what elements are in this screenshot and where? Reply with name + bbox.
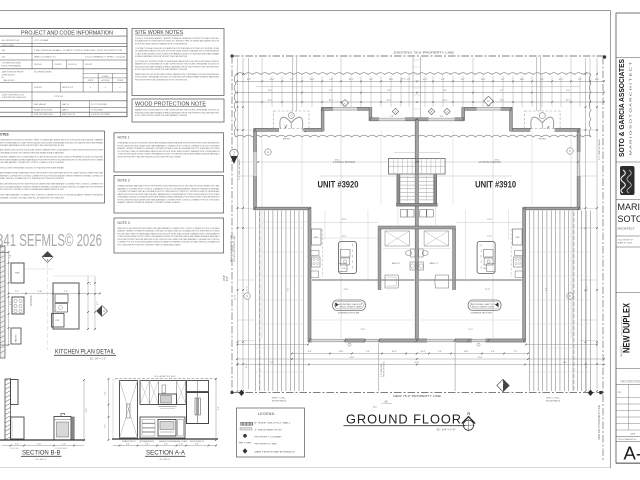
svg-text:TITLE DRAWING No.: TITLE DRAWING No. xyxy=(618,438,638,441)
svg-text:OPEN AREAS SODDING OR PLANTING: OPEN AREAS SODDING OR PLANTING WHICH ARE… xyxy=(0,151,64,154)
svg-text:15'-6": 15'-6" xyxy=(342,219,347,221)
svg-text:14'-0": 14'-0" xyxy=(464,351,469,353)
svg-text:14'-0": 14'-0" xyxy=(339,351,344,353)
svg-text:27'-0": 27'-0" xyxy=(247,286,249,291)
svg-text:BATH #1: BATH #1 xyxy=(392,262,401,265)
svg-text:DW: DW xyxy=(343,268,346,270)
svg-text:GROUND FLOOR: GROUND FLOOR xyxy=(346,411,462,426)
svg-text:GROUP R-2: GROUP R-2 xyxy=(62,87,74,89)
svg-text:SITE WORK IN AN ORDERLY MANNER: SITE WORK IN AN ORDERLY MANNER WITH CONS… xyxy=(135,42,187,45)
svg-text:..EAR INTERIOR FINISH: ..EAR INTERIOR FINISH xyxy=(1,71,24,74)
svg-text:OTES: OTES xyxy=(0,132,9,136)
svg-text:8'-0": 8'-0" xyxy=(247,79,251,81)
svg-text:8'-0": 8'-0" xyxy=(270,362,274,364)
svg-text:27'-0": 27'-0" xyxy=(235,294,237,300)
svg-text:BATH #1: BATH #1 xyxy=(430,262,439,265)
svg-text:..AL JURISDICTION: ..AL JURISDICTION xyxy=(1,39,20,42)
svg-text:4" WIDE PARTITION: 4" WIDE PARTITION xyxy=(255,428,283,431)
svg-text:NEW 5' CONC.: NEW 5' CONC. xyxy=(546,398,560,400)
svg-text:GENERAL CONTRACTOR SHALL KEEP: GENERAL CONTRACTOR SHALL KEEP ALL EXCAVA… xyxy=(0,196,64,199)
svg-text:WARRANTY LICENSED PEST CONTROL: WARRANTY LICENSED PEST CONTROL COMPANY F… xyxy=(118,187,221,190)
svg-text:PITS TRENCHES FOOTINGS ETC ENT: PITS TRENCHES FOOTINGS ETC ENTIRELY FREE… xyxy=(118,243,182,246)
svg-text:19'-6": 19'-6" xyxy=(495,160,500,162)
svg-text:TO ANY SURROUNDING STRUCTURES: TO ANY SURROUNDING STRUCTURES OPEN AREAS… xyxy=(118,153,220,156)
svg-text:TO ANY SURROUNDING STRUCTURES: TO ANY SURROUNDING STRUCTURES OPEN AREAS… xyxy=(135,52,219,55)
svg-text:5'-0" SIDE SETBACK: 5'-0" SIDE SETBACK xyxy=(598,139,601,160)
svg-text:PANTRY: PANTRY xyxy=(15,333,18,342)
svg-text:SOTO P: SOTO P xyxy=(618,214,640,224)
svg-text:2,604 SF PROVIDED: 2,604 SF PROVIDED xyxy=(91,114,111,116)
svg-text:2 UNITS: 2 UNITS xyxy=(54,64,62,66)
svg-text:FOOTINGS ETC ENTIRELY FREE OF: FOOTINGS ETC ENTIRELY FREE OF DEBRIS AND… xyxy=(135,60,219,63)
svg-text:ARCHITECT: ARCHITECT xyxy=(618,227,635,231)
svg-text:4'-7": 4'-7" xyxy=(97,301,99,305)
svg-text:MAX 35': MAX 35' xyxy=(62,103,70,106)
svg-text:ETC ENTIRELY FREE OF DEBRIS AN: ETC ENTIRELY FREE OF DEBRIS AND WATER EX… xyxy=(118,150,220,153)
svg-text:M A R I O S O T O A R C H: M A R I O S O T O A R C H I T E C T xyxy=(629,61,633,155)
svg-text:FOR SOIL POISONING AGAINST TER: FOR SOIL POISONING AGAINST TERMITE OPERA… xyxy=(135,37,220,40)
svg-text:3910-3920 SW 25 ST: 3910-3920 SW 25 ST xyxy=(621,315,623,336)
svg-text:2'-6": 2'-6" xyxy=(62,443,66,445)
svg-text:MAIN PEDESTRIAN ENTRANCE: MAIN PEDESTRIAN ENTRANCE xyxy=(255,450,296,453)
svg-text:5'-0": 5'-0" xyxy=(226,276,229,281)
svg-text:10'-4": 10'-4" xyxy=(392,351,397,353)
svg-text:21'-8": 21'-8" xyxy=(344,289,349,291)
svg-text:STRUCTURES/AREA: STRUCTURES/AREA xyxy=(1,64,21,67)
svg-text:FROM THE PROPERTY BECOME REMOV: FROM THE PROPERTY BECOME REMOVED BY HIS … xyxy=(135,79,188,81)
svg-text:9'-1": 9'-1" xyxy=(290,79,294,81)
svg-text:OCCUPANCY (FBC Chp3): OCCUPANCY (FBC Chp3) xyxy=(85,56,126,59)
svg-text:..NG: ..NG xyxy=(1,50,6,52)
svg-text:2'-6": 2'-6" xyxy=(164,443,168,445)
svg-text:OLD 87'M PROPERTY LINE: OLD 87'M PROPERTY LINE xyxy=(234,235,236,262)
svg-text:9'-1": 9'-1" xyxy=(500,90,504,92)
svg-text:9'-8": 9'-8" xyxy=(329,79,333,81)
svg-text:1'-0": 1'-0" xyxy=(179,443,183,445)
svg-text:AND WATER EXECUTE SITE WORK IN: AND WATER EXECUTE SITE WORK IN AN ORDERL… xyxy=(0,149,103,152)
svg-text:2'-0": 2'-0" xyxy=(15,291,19,293)
svg-text:SIZE OF DWELLING: SIZE OF DWELLING xyxy=(34,114,53,116)
svg-text:8" WIDE CMU FULL WALL: 8" WIDE CMU FULL WALL xyxy=(255,421,292,424)
svg-text:EXISTING 78.0' PROPERTY LINE: EXISTING 78.0' PROPERTY LINE xyxy=(394,51,454,55)
svg-text:SURFACE MATERIALS FROM THE PRO: SURFACE MATERIALS FROM THE PROPERTY BECO… xyxy=(0,144,64,147)
svg-text:NEW 75.0' PROPERTY LINE: NEW 75.0' PROPERTY LINE xyxy=(393,394,441,398)
svg-text:DINING ROOM: DINING ROOM xyxy=(471,313,492,315)
svg-text:UNIT #3910: UNIT #3910 xyxy=(475,180,516,190)
svg-text:2'-0": 2'-0" xyxy=(15,443,19,445)
svg-text:9'-8": 9'-8" xyxy=(387,90,391,92)
svg-text:NUMB OF FLOORS: NUMB OF FLOORS xyxy=(34,109,53,111)
svg-text:TRENCHES FOOTINGS ETC ENTIRELY: TRENCHES FOOTINGS ETC ENTIRELY FREE OF D… xyxy=(0,139,103,142)
svg-text:SURFACE MATERIALS FROM THE PRO: SURFACE MATERIALS FROM THE PROPERTY BECO… xyxy=(135,55,187,58)
svg-text:SC: 3/8"=1': SC: 3/8"=1' xyxy=(36,459,48,461)
svg-text:ETC ENTIRELY FREE OF DEBRIS AN: ETC ENTIRELY FREE OF DEBRIS AND WATER EX… xyxy=(118,232,220,235)
svg-text:MODIFIED LAYOUT: MODIFIED LAYOUT xyxy=(339,303,364,306)
svg-text:8'-0": 8'-0" xyxy=(566,90,570,92)
svg-text:SC: 1/4" = 1'-0": SC: 1/4" = 1'-0" xyxy=(436,428,455,432)
svg-text:NEW 120.0' PROPERTY LINE: NEW 120.0' PROPERTY LINE xyxy=(597,405,601,440)
svg-text:15'-6": 15'-6" xyxy=(487,219,492,221)
svg-text:8'-0": 8'-0" xyxy=(491,351,495,353)
svg-text:THE DESIGN SHALL COMPLY WITH T: THE DESIGN SHALL COMPLY WITH THE FBC 202… xyxy=(34,49,123,52)
svg-text:2'-0": 2'-0" xyxy=(126,443,130,445)
svg-text:BY HIS CREW PROVIDE OWNER ONE: BY HIS CREW PROVIDE OWNER ONE YEAR WARRA… xyxy=(118,198,220,201)
svg-text:PROJECT AND CODE INFORMATION: PROJECT AND CODE INFORMATION xyxy=(21,30,113,36)
svg-text:TO ANY SURROUNDING STRUCTURES: TO ANY SURROUNDING STRUCTURES OPEN AREAS… xyxy=(118,235,220,238)
svg-text:AGAINST TERMITE OPERATION GENE: AGAINST TERMITE OPERATION GENERAL CONTRA… xyxy=(118,147,220,150)
svg-text:ENTRY: ENTRY xyxy=(539,139,547,141)
svg-text:FROM THE PROPERTY BECOME REMOV: FROM THE PROPERTY BECOME REMOVED BY HIS … xyxy=(118,156,182,158)
svg-text:NO SPRINKLERED: NO SPRINKLERED xyxy=(34,72,52,74)
svg-text:ONE YEAR WARRANTY LICENSED PES: ONE YEAR WARRANTY LICENSED PEST CONTROL … xyxy=(0,194,103,197)
svg-text:5'-10": 5'-10" xyxy=(37,443,42,445)
svg-text:UNITS: UNITS xyxy=(88,80,94,82)
svg-text:MARIO: MARIO xyxy=(618,202,640,212)
svg-text:..DING CONSTRUCTION: ..DING CONSTRUCTION xyxy=(1,94,24,96)
svg-text:3'-0": 3'-0" xyxy=(284,125,288,127)
svg-text:27'-0": 27'-0" xyxy=(246,363,248,368)
svg-text:ACCESS: ACCESS xyxy=(102,79,111,82)
svg-text:27'-0": 27'-0" xyxy=(586,363,588,368)
svg-text:FRONT SETBACK: FRONT SETBACK xyxy=(383,360,386,377)
svg-text:16'-1": 16'-1" xyxy=(443,100,448,102)
svg-text:BECOME REMOVED BY HIS CREW PRO: BECOME REMOVED BY HIS CREW PROVIDE OWNER… xyxy=(0,183,103,186)
svg-text:2'-6": 2'-6" xyxy=(145,443,149,445)
svg-text:6'-10": 6'-10" xyxy=(38,291,43,293)
svg-text:TABLE 803.5: TABLE 803.5 xyxy=(3,79,16,82)
svg-text:9'-8": 9'-8" xyxy=(438,351,442,353)
svg-text:27'-0": 27'-0" xyxy=(361,329,366,331)
svg-text:NEW 87'M PROPERTY LINE: NEW 87'M PROPERTY LINE xyxy=(231,234,233,262)
svg-text:24'-6": 24'-6" xyxy=(478,357,483,359)
svg-text:ARE REMAIN SURFACE MATERIALS F: ARE REMAIN SURFACE MATERIALS FROM THE PR… xyxy=(0,172,103,175)
svg-text:REMOVED BY HIS CREW PROVIDE OW: REMOVED BY HIS CREW PROVIDE OWNER ONE YE… xyxy=(118,227,220,230)
svg-text:..SSIFICATION: ..SSIFICATION xyxy=(1,73,15,76)
svg-text:341 SEFMLS© 2026: 341 SEFMLS© 2026 xyxy=(0,230,102,250)
svg-text:9'-8": 9'-8" xyxy=(440,116,444,118)
svg-text:19'-6": 19'-6" xyxy=(335,160,340,162)
svg-text:CONTRACTOR SHALL KEEP ALL EXCA: CONTRACTOR SHALL KEEP ALL EXCAVATIONS PI… xyxy=(118,190,220,193)
svg-text:8'-0": 8'-0" xyxy=(86,408,88,412)
svg-text:COMPANY FOR SOIL POISONING AGA: COMPANY FOR SOIL POISONING AGAINST TERMI… xyxy=(118,241,220,244)
svg-text:MANNER WITH CONSIDERATION TO A: MANNER WITH CONSIDERATION TO ANY SURROUN… xyxy=(135,109,219,112)
svg-text:DUPLEX: DUPLEX xyxy=(34,87,43,89)
svg-text:8'-0": 8'-0" xyxy=(563,362,567,364)
svg-text:NOTE 1: NOTE 1 xyxy=(118,136,130,140)
svg-text:BY HIS CREW PROVIDE OWNER ONE: BY HIS CREW PROVIDE OWNER ONE YEAR WARRA… xyxy=(135,114,187,117)
svg-text:16'-1": 16'-1" xyxy=(329,100,334,102)
svg-text:3'-0": 3'-0" xyxy=(195,443,199,445)
svg-text:2,604 S.F.: 2,604 S.F. xyxy=(68,64,77,66)
svg-text:2 PROVIDED: 2 PROVIDED xyxy=(91,109,104,111)
svg-text:FOOTINGS ETC ENTIRELY FREE OF: FOOTINGS ETC ENTIRELY FREE OF DEBRIS AND… xyxy=(0,188,64,191)
svg-text:8'-4": 8'-4" xyxy=(288,287,290,291)
svg-text:REF.: REF. xyxy=(15,273,20,275)
svg-text:8'-0": 8'-0" xyxy=(268,90,272,92)
svg-text:9'-1": 9'-1" xyxy=(514,351,518,353)
svg-text:SW (SETBACK): SW (SETBACK) xyxy=(272,400,287,403)
svg-text:9'-1": 9'-1" xyxy=(329,90,333,92)
svg-text:STRUCTURES OPEN AREAS SODDING: STRUCTURES OPEN AREAS SODDING OR PLANTIN… xyxy=(0,167,64,170)
svg-text:27'-0": 27'-0" xyxy=(468,329,473,331)
svg-text:WITH CONSIDERATION TO ANY SURR: WITH CONSIDERATION TO ANY SURROUNDING ST… xyxy=(0,141,103,144)
svg-text:FIELD VERIFY DIMS: FIELD VERIFY DIMS xyxy=(340,307,363,309)
svg-text:MAX HEIGHT: MAX HEIGHT xyxy=(34,103,47,106)
svg-text:8'-0": 8'-0" xyxy=(218,406,220,410)
svg-text:ORDERLY MANNER WITH CONSIDERAT: ORDERLY MANNER WITH CONSIDERATION TO ANY… xyxy=(0,156,103,159)
svg-text:MODIFIED LAYOUT: MODIFIED LAYOUT xyxy=(471,303,496,306)
svg-text:MANNER WITH CONSIDERATION TO A: MANNER WITH CONSIDERATION TO ANY SURROUN… xyxy=(135,63,219,66)
svg-text:4'-6": 4'-6" xyxy=(105,391,107,395)
svg-text:N: N xyxy=(467,411,470,416)
svg-text:DATE:: DATE: xyxy=(630,433,636,436)
svg-text:PROJECT:: PROJECT: xyxy=(620,345,623,357)
svg-text:NOTE 2: NOTE 2 xyxy=(118,178,130,182)
svg-text:..S AS PER FBC TABLE 601: ..S AS PER FBC TABLE 601 xyxy=(1,96,27,99)
svg-text:..STORIES BUILDING: ..STORIES BUILDING xyxy=(1,63,21,65)
svg-text:12'-4": 12'-4" xyxy=(342,236,347,238)
svg-text:REMAIN SURFACE MATERIALS FROM: REMAIN SURFACE MATERIALS FROM THE PROPER… xyxy=(118,185,220,188)
svg-text:CONTRACTOR SHALL KEEP ALL EXCA: CONTRACTOR SHALL KEEP ALL EXCAVATIONS PI… xyxy=(135,47,219,50)
svg-text:OPEN AREAS SODDING OR PLANTING: OPEN AREAS SODDING OR PLANTING WHICH ARE… xyxy=(118,142,220,145)
svg-text:12'-4": 12'-4" xyxy=(487,236,492,238)
svg-text:SHALL KEEP ALL EXCAVATIONS PIT: SHALL KEEP ALL EXCAVATIONS PITS TRENCHES… xyxy=(0,177,64,180)
svg-text:8'-4": 8'-4" xyxy=(546,287,548,291)
svg-text:16'-1": 16'-1" xyxy=(500,100,505,102)
svg-text:CLASS: CLASS xyxy=(102,75,109,78)
svg-text:AGAINST TERMITE OPERATION GENE: AGAINST TERMITE OPERATION GENERAL CONTRA… xyxy=(118,230,220,233)
svg-text:9'-8": 9'-8" xyxy=(366,351,370,353)
svg-text:8'-0": 8'-0" xyxy=(308,351,312,353)
svg-text:FIELD VERIFY DIMS: FIELD VERIFY DIMS xyxy=(472,307,495,309)
svg-text:OTHER: OTHER xyxy=(117,80,124,82)
svg-text:SC: 3/4" = 1'-0": SC: 3/4" = 1'-0" xyxy=(90,358,106,361)
svg-text:AGAINST TERMITE OPERATION GENE: AGAINST TERMITE OPERATION GENERAL CONTRA… xyxy=(118,201,182,204)
svg-text:A: A xyxy=(267,150,269,154)
svg-text:SECTION A-A: SECTION A-A xyxy=(146,451,185,457)
svg-text:5'-0" SIDE SETBACK: 5'-0" SIDE SETBACK xyxy=(238,159,241,180)
svg-text:MAX 2: MAX 2 xyxy=(62,108,69,111)
svg-text:27'-0": 27'-0" xyxy=(587,286,589,291)
svg-text:25'-0" PROVIDED: 25'-0" PROVIDED xyxy=(91,104,108,106)
svg-text:2'-6": 2'-6" xyxy=(90,281,92,285)
svg-text:PLANTING WHICH ARE REMAIN SURF: PLANTING WHICH ARE REMAIN SURFACE MATERI… xyxy=(135,65,219,68)
svg-text:OF DEBRIS AND WATER EXECUTE SI: OF DEBRIS AND WATER EXECUTE SITE WORK IN… xyxy=(135,50,219,53)
svg-text:GROUP: GROUP xyxy=(85,64,93,66)
svg-text:A-1: A-1 xyxy=(624,443,640,464)
svg-text:5'-0" WALKWAY: 5'-0" WALKWAY xyxy=(380,363,383,377)
svg-text:NOTE 3: NOTE 3 xyxy=(118,221,130,225)
svg-text:ENTRY: ENTRY xyxy=(283,139,291,141)
svg-text:FROM THE PROPERTY BECOME REMOV: FROM THE PROPERTY BECOME REMOVED BY HIS … xyxy=(118,238,221,241)
svg-text:SECTION B-B: SECTION B-B xyxy=(22,451,61,457)
svg-text:ONE YEAR WARRANTY LICENSED PES: ONE YEAR WARRANTY LICENSED PEST CONTROL … xyxy=(0,161,64,164)
svg-text:BY HIS CREW PROVIDE OWNER ONE: BY HIS CREW PROVIDE OWNER ONE YEAR WARRA… xyxy=(135,68,187,71)
svg-text:KITCHEN PLAN DETAIL: KITCHEN PLAN DETAIL xyxy=(55,350,116,356)
svg-text:..NG: ..NG xyxy=(1,57,6,59)
svg-text:OPEN AREAS SODDING OR PLANTING: OPEN AREAS SODDING OR PLANTING WHICH ARE… xyxy=(118,196,220,199)
svg-text:7500 SW 8TH ST: 7500 SW 8TH ST xyxy=(618,240,634,242)
svg-text:UNIT #3920: UNIT #3920 xyxy=(318,180,359,190)
svg-text:WHICH ARE REMAIN SURFACE MATER: WHICH ARE REMAIN SURFACE MATERIALS FROM … xyxy=(0,158,103,161)
svg-text:SW (SETBACK): SW (SETBACK) xyxy=(546,400,561,403)
svg-text:EXCAVATIONS PITS TRENCHES FOOT: EXCAVATIONS PITS TRENCHES FOOTINGS ETC E… xyxy=(135,40,219,43)
svg-text:21'-8": 21'-8" xyxy=(485,289,490,291)
svg-text:3'-0": 3'-0" xyxy=(105,424,107,428)
svg-text:TYPE V-B: TYPE V-B xyxy=(54,96,64,98)
svg-text:BY HIS CREW PROVIDE OWNER ONE: BY HIS CREW PROVIDE OWNER ONE YEAR WARRA… xyxy=(118,144,220,147)
svg-text:NEW 5' CONC.: NEW 5' CONC. xyxy=(272,398,286,400)
svg-text:WATER EXECUTE SITE WORK IN AN: WATER EXECUTE SITE WORK IN AN ORDERLY MA… xyxy=(118,193,220,196)
svg-text:9'-8": 9'-8" xyxy=(443,90,447,92)
svg-text:16'-1": 16'-1" xyxy=(566,100,571,102)
svg-text:2'-0": 2'-0" xyxy=(10,254,12,258)
svg-text:CLG. HEIGHT 8'-0" A.F.F.: CLG. HEIGHT 8'-0" A.F.F. xyxy=(154,375,176,378)
svg-text:10'-4": 10'-4" xyxy=(421,351,426,353)
svg-text:SOIL POISONING AGAINST TERMITE: SOIL POISONING AGAINST TERMITE OPERATION… xyxy=(0,185,103,188)
svg-text:2'-0": 2'-0" xyxy=(64,291,68,293)
svg-text:44'-0": 44'-0" xyxy=(414,362,419,364)
svg-text:9'-8": 9'-8" xyxy=(390,116,394,118)
svg-text:KITCHEN: KITCHEN xyxy=(30,295,33,306)
svg-text:No.: No. xyxy=(618,390,623,394)
svg-text:24'-6": 24'-6" xyxy=(350,357,355,359)
svg-text:PROPERTY CORNER: PROPERTY CORNER xyxy=(255,436,283,438)
svg-text:WARRANTY LICENSED PEST CONTROL: WARRANTY LICENSED PEST CONTROL COMPANY F… xyxy=(0,174,103,177)
svg-text:MIAMI 21 ZONING T3-O: MIAMI 21 ZONING T3-O xyxy=(34,56,56,59)
svg-text:DUPLEX: DUPLEX xyxy=(34,64,43,66)
svg-text:LEGEND:: LEGEND: xyxy=(258,412,276,416)
svg-text:..PED CODES: ..PED CODES xyxy=(1,45,15,47)
svg-text:MAX 9,000 SF: MAX 9,000 SF xyxy=(62,113,76,116)
svg-text:SOTO & GARCIA ASSOCIATES: SOTO & GARCIA ASSOCIATES xyxy=(619,59,626,157)
svg-text:MIAMI FL 33144: MIAMI FL 33144 xyxy=(618,242,634,245)
svg-text:WATER EXECUTE SITE WORK IN AN: WATER EXECUTE SITE WORK IN AN ORDERLY MA… xyxy=(135,73,219,76)
svg-text:DW: DW xyxy=(483,268,486,270)
svg-text:PLANTING WHICH ARE REMAIN SURF: PLANTING WHICH ARE REMAIN SURFACE MATERI… xyxy=(135,111,219,114)
svg-text:REF.: REF. xyxy=(515,237,520,239)
svg-text:SC: 3/8"=1': SC: 3/8"=1' xyxy=(160,459,172,461)
svg-text:REVISIONS: REVISIONS xyxy=(621,380,640,384)
svg-text:CITY OF MIAMI: CITY OF MIAMI xyxy=(34,39,49,42)
svg-text:PROPERTY LINE: PROPERTY LINE xyxy=(255,443,278,445)
svg-text:STRUCTURES OPEN AREAS SODDING: STRUCTURES OPEN AREAS SODDING OR PLANTIN… xyxy=(135,76,219,79)
svg-text:DINING ROOM: DINING ROOM xyxy=(338,313,359,315)
